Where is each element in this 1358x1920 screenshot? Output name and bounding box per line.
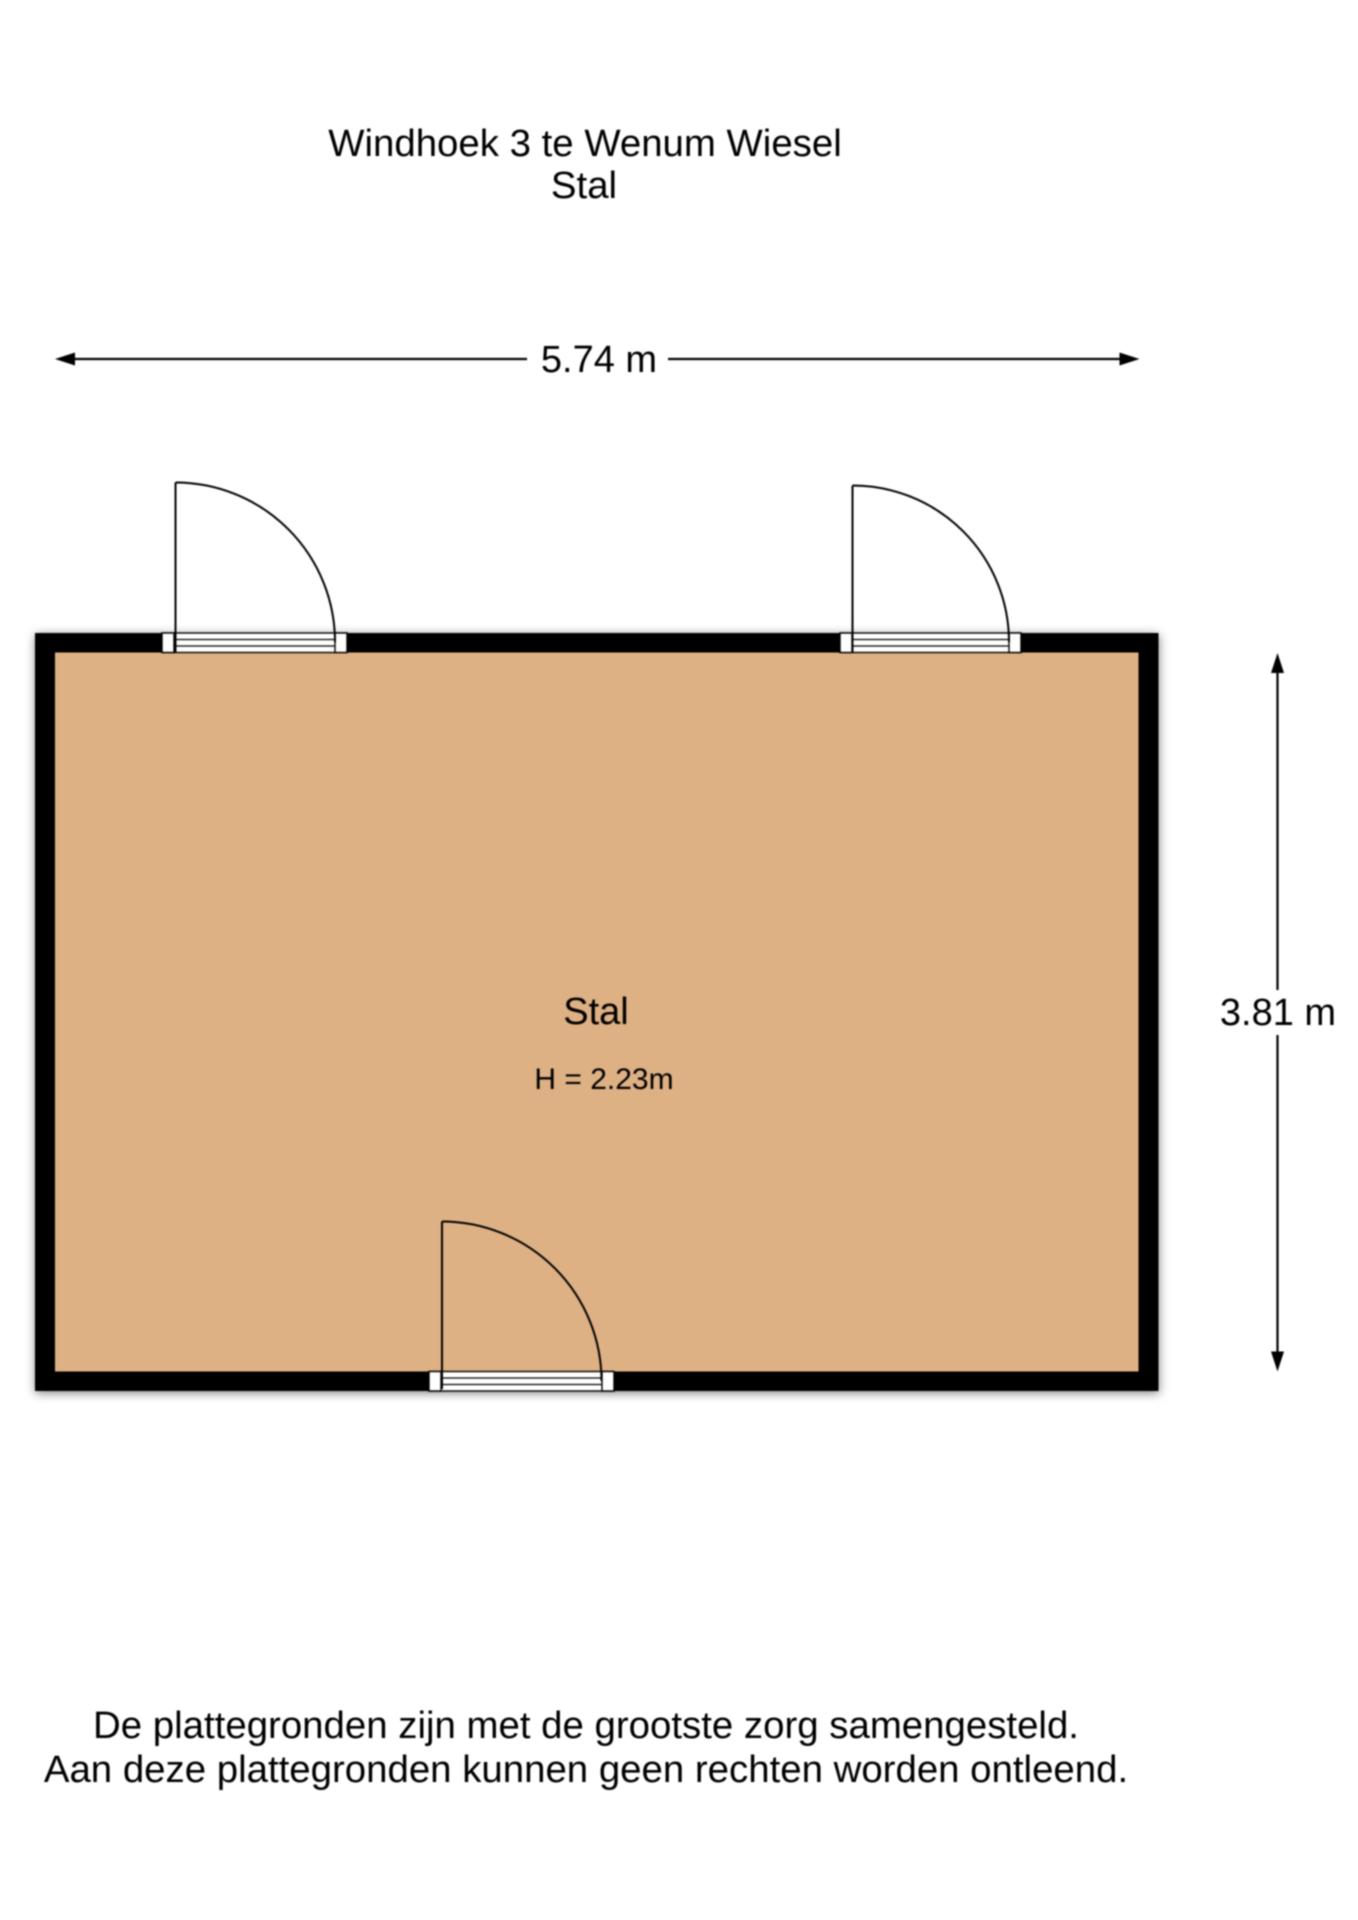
svg-text:Stal: Stal bbox=[551, 164, 617, 207]
svg-text:Stal: Stal bbox=[563, 991, 628, 1033]
svg-text:5.74 m: 5.74 m bbox=[541, 339, 657, 381]
svg-text:Windhoek 3 te Wenum Wiesel: Windhoek 3 te Wenum Wiesel bbox=[328, 122, 842, 165]
svg-text:H = 2.23m: H = 2.23m bbox=[534, 1063, 673, 1096]
svg-text:Aan deze plattegronden kunnen: Aan deze plattegronden kunnen geen recht… bbox=[44, 1748, 1128, 1791]
svg-text:De plattegronden zijn met de g: De plattegronden zijn met de grootste zo… bbox=[93, 1704, 1079, 1747]
svg-text:3.81 m: 3.81 m bbox=[1220, 992, 1336, 1034]
